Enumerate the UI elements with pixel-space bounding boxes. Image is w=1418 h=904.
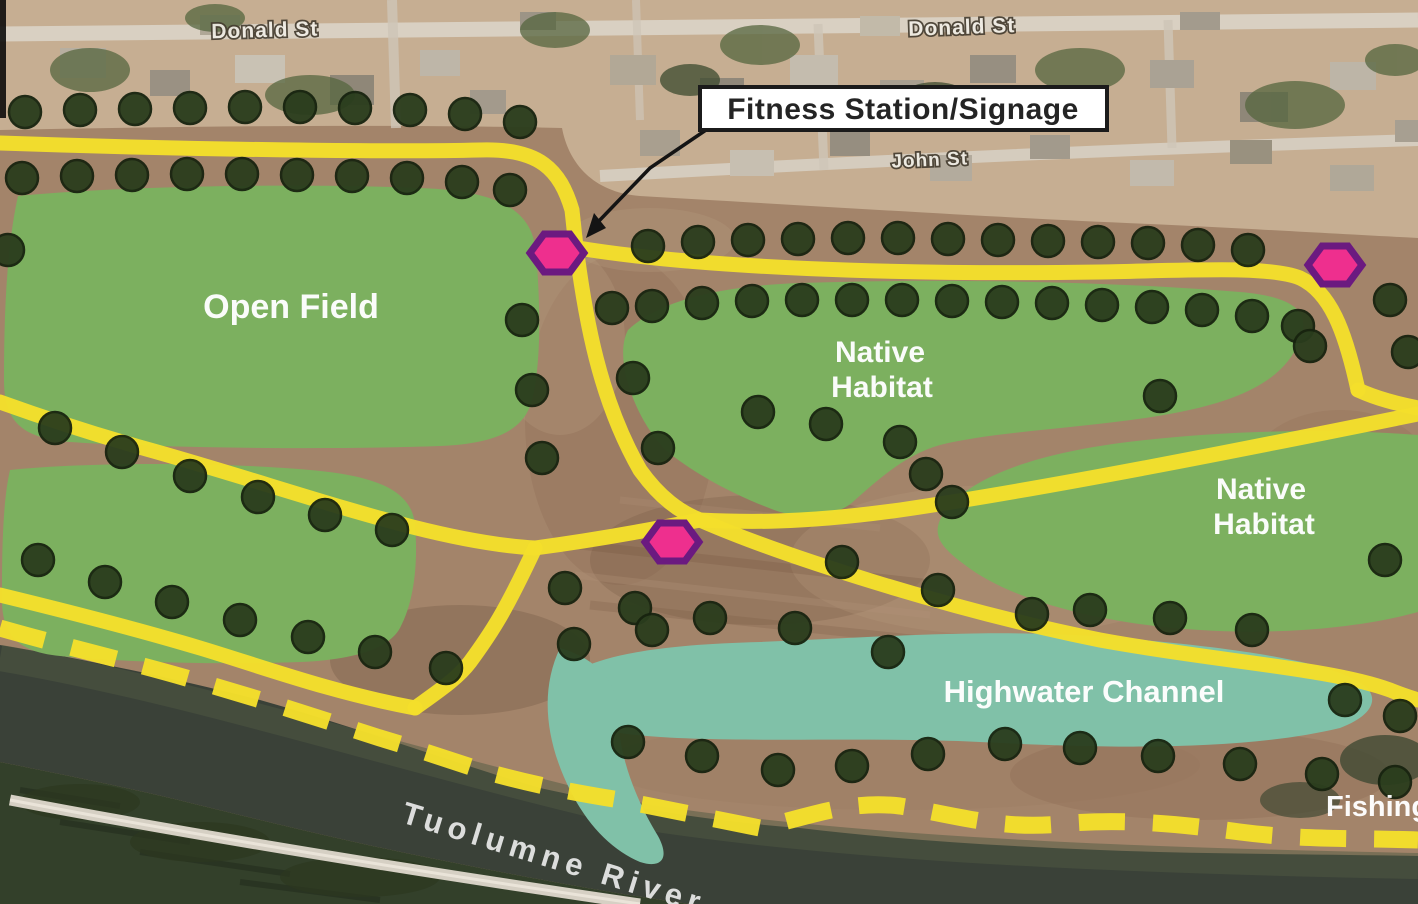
tree-icon: [39, 412, 71, 444]
tree-icon: [1032, 225, 1064, 257]
native-habitat-east-label-line1: Native: [1216, 473, 1306, 506]
tree-icon: [1232, 234, 1264, 266]
tree-icon: [836, 284, 868, 316]
native-habitat-east-label-line2: Habitat: [1213, 508, 1315, 541]
tree-icon: [617, 362, 649, 394]
tree-icon: [336, 160, 368, 192]
tree-icon: [922, 574, 954, 606]
tree-icon: [612, 726, 644, 758]
donald-st-east-label: Donald St: [908, 14, 1016, 41]
tree-icon: [1142, 740, 1174, 772]
tree-icon: [174, 92, 206, 124]
tree-icon: [910, 458, 942, 490]
tree-icon: [1186, 294, 1218, 326]
tree-icon: [359, 636, 391, 668]
tree-icon: [782, 223, 814, 255]
tree-icon: [376, 514, 408, 546]
tree-icon: [119, 93, 151, 125]
tree-icon: [446, 166, 478, 198]
tree-icon: [449, 98, 481, 130]
fitness-station-marker: [1308, 246, 1362, 284]
tree-icon: [636, 290, 668, 322]
tree-icon: [682, 226, 714, 258]
tree-icon: [1074, 594, 1106, 626]
tree-icon: [1236, 300, 1268, 332]
tree-icon: [636, 614, 668, 646]
tree-icon: [171, 158, 203, 190]
tree-icon: [1182, 229, 1214, 261]
tree-icon: [1236, 614, 1268, 646]
native-habitat-center-label-line2: Habitat: [831, 371, 933, 404]
tree-icon: [0, 234, 24, 266]
tree-icon: [986, 286, 1018, 318]
tree-icon: [430, 652, 462, 684]
tree-icon: [1154, 602, 1186, 634]
tree-icon: [309, 499, 341, 531]
tree-icon: [506, 304, 538, 336]
tree-icon: [116, 159, 148, 191]
tree-icon: [836, 750, 868, 782]
tree-icon: [1329, 684, 1361, 716]
tree-icon: [1294, 330, 1326, 362]
tree-icon: [1224, 748, 1256, 780]
tree-icon: [872, 636, 904, 668]
tree-icon: [174, 460, 206, 492]
fitness-callout-label: Fitness Station/Signage: [727, 93, 1079, 126]
tree-icon: [936, 486, 968, 518]
fishing-label: Fishing: [1326, 791, 1418, 823]
tree-icon: [281, 159, 313, 191]
tree-icon: [1369, 544, 1401, 576]
tree-icon: [1132, 227, 1164, 259]
tree-icon: [242, 481, 274, 513]
tree-icon: [882, 222, 914, 254]
tree-icon: [1082, 226, 1114, 258]
tree-icon: [1086, 289, 1118, 321]
tree-icon: [526, 442, 558, 474]
park-plan-svg: Open Field Native Habitat Native Habitat…: [0, 0, 1418, 904]
park-plan-map: Open Field Native Habitat Native Habitat…: [0, 0, 1418, 904]
tree-icon: [504, 106, 536, 138]
tree-icon: [686, 287, 718, 319]
tree-icon: [936, 285, 968, 317]
tree-icon: [886, 284, 918, 316]
tree-icon: [779, 612, 811, 644]
tree-icon: [156, 586, 188, 618]
tree-icon: [6, 162, 38, 194]
tree-icon: [694, 602, 726, 634]
tree-icon: [932, 223, 964, 255]
tree-icon: [494, 174, 526, 206]
tree-icon: [912, 738, 944, 770]
south-field-area: [2, 464, 416, 663]
tree-icon: [642, 432, 674, 464]
tree-icon: [292, 621, 324, 653]
tree-icon: [1144, 380, 1176, 412]
tree-icon: [1016, 598, 1048, 630]
tree-icon: [832, 222, 864, 254]
tree-icon: [596, 292, 628, 324]
tree-icon: [229, 91, 261, 123]
fitness-station-marker: [530, 234, 584, 272]
tree-icon: [9, 96, 41, 128]
tree-icon: [762, 754, 794, 786]
tree-icon: [549, 572, 581, 604]
tree-icon: [394, 94, 426, 126]
image-edge-sliver: [0, 0, 6, 118]
tree-icon: [1136, 291, 1168, 323]
fitness-station-marker: [645, 523, 699, 561]
tree-icon: [1384, 700, 1416, 732]
tree-icon: [686, 740, 718, 772]
tree-icon: [284, 91, 316, 123]
tree-icon: [89, 566, 121, 598]
tree-icon: [61, 160, 93, 192]
tree-icon: [786, 284, 818, 316]
tree-icon: [516, 374, 548, 406]
tree-icon: [1036, 287, 1068, 319]
tree-icon: [391, 162, 423, 194]
tree-icon: [810, 408, 842, 440]
tree-icon: [884, 426, 916, 458]
tree-icon: [1064, 732, 1096, 764]
tree-icon: [224, 604, 256, 636]
tree-icon: [742, 396, 774, 428]
tree-icon: [1306, 758, 1338, 790]
tree-icon: [632, 230, 664, 262]
highwater-channel-label: Highwater Channel: [944, 674, 1225, 709]
tree-icon: [736, 285, 768, 317]
native-habitat-center-label-line1: Native: [835, 336, 925, 369]
tree-icon: [226, 158, 258, 190]
tree-icon: [982, 224, 1014, 256]
tree-icon: [22, 544, 54, 576]
tree-icon: [732, 224, 764, 256]
tree-icon: [1392, 336, 1418, 368]
tree-icon: [64, 94, 96, 126]
open-field-label: Open Field: [203, 288, 379, 326]
tree-icon: [106, 436, 138, 468]
donald-st-west-label: Donald St: [211, 18, 319, 44]
tree-icon: [989, 728, 1021, 760]
tree-icon: [826, 546, 858, 578]
tree-icon: [339, 92, 371, 124]
tree-icon: [1374, 284, 1406, 316]
tree-icon: [558, 628, 590, 660]
john-st-label: John St: [891, 148, 969, 172]
